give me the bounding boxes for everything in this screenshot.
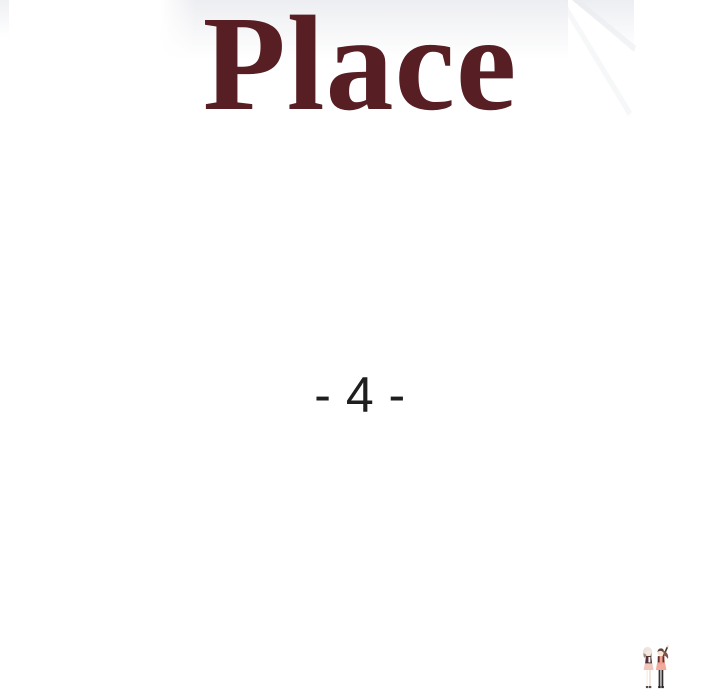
chibi-girl-left bbox=[643, 647, 654, 688]
title-card-page: Place - 4 - bbox=[0, 0, 720, 700]
chibi-girl-right bbox=[656, 645, 669, 688]
chibi-characters-illustration bbox=[640, 644, 673, 692]
series-title: Place bbox=[0, 0, 720, 132]
episode-number: - 4 - bbox=[0, 370, 720, 420]
